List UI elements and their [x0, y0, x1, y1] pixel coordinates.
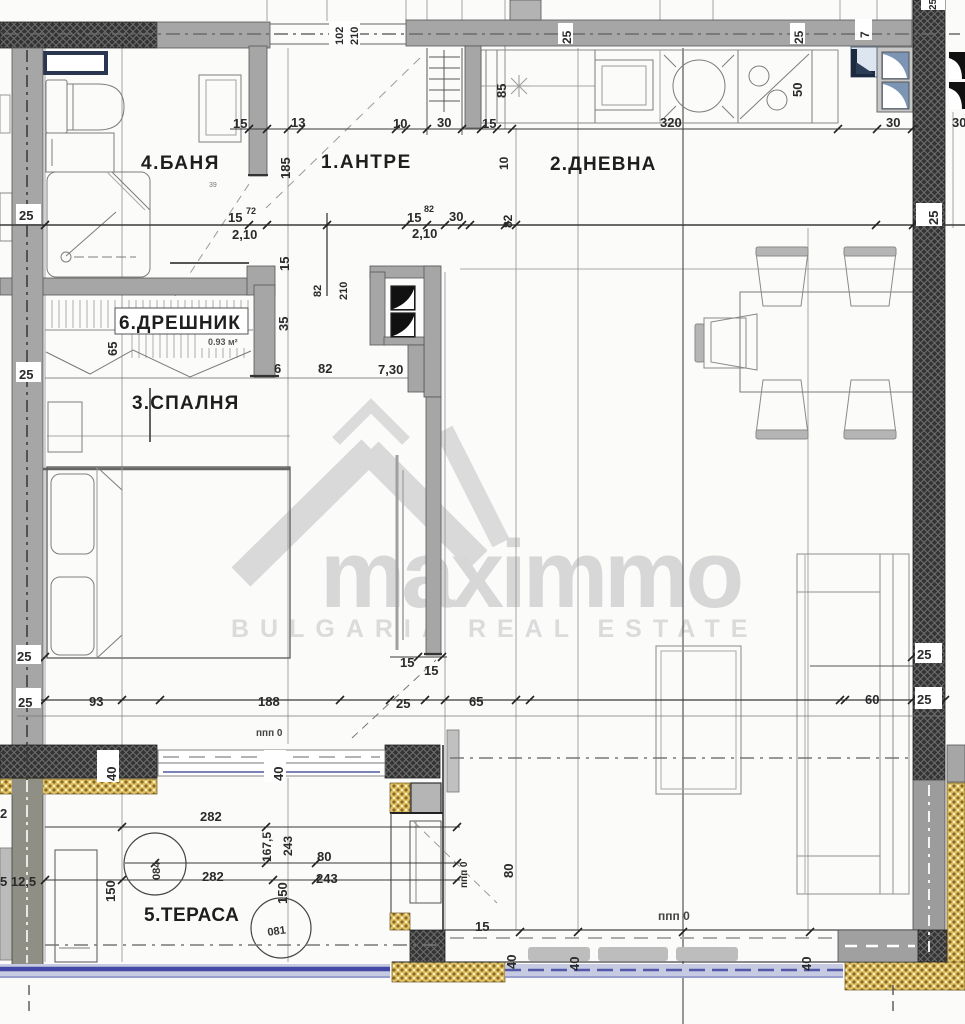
svg-text:15: 15 [400, 655, 414, 670]
svg-text:25: 25 [19, 367, 33, 382]
svg-text:15: 15 [424, 663, 438, 678]
svg-text:82: 82 [312, 285, 324, 297]
svg-text:10: 10 [393, 116, 407, 131]
svg-text:ппп 0: ппп 0 [256, 728, 283, 739]
svg-text:40: 40 [504, 955, 519, 969]
svg-text:72: 72 [246, 206, 256, 216]
svg-text:2: 2 [0, 806, 7, 821]
svg-text:282: 282 [200, 809, 222, 824]
svg-text:2.ДНЕВНА: 2.ДНЕВНА [550, 154, 657, 175]
svg-text:15: 15 [475, 919, 489, 934]
svg-text:maximmo: maximmo [320, 521, 741, 628]
svg-text:30: 30 [437, 115, 451, 130]
svg-text:ппп 0: ппп 0 [658, 909, 690, 923]
svg-text:6.ДРЕШНИК: 6.ДРЕШНИК [119, 313, 241, 334]
svg-text:167,5: 167,5 [260, 832, 274, 862]
svg-text:50: 50 [790, 83, 805, 97]
svg-text:25: 25 [396, 696, 410, 711]
svg-text:102: 102 [334, 27, 346, 45]
svg-text:80: 80 [501, 864, 516, 878]
svg-text:150: 150 [275, 882, 290, 904]
svg-text:65: 65 [469, 694, 483, 709]
svg-text:282: 282 [202, 869, 224, 884]
svg-text:39: 39 [209, 182, 217, 189]
svg-text:0.93 м²: 0.93 м² [208, 337, 238, 347]
svg-text:25: 25 [18, 695, 32, 710]
svg-text:7,30: 7,30 [378, 362, 403, 377]
svg-text:210: 210 [349, 27, 361, 45]
svg-text:5 12,5: 5 12,5 [0, 874, 36, 889]
svg-text:93: 93 [89, 694, 103, 709]
svg-text:10: 10 [497, 156, 511, 170]
svg-text:1.АНТРЕ: 1.АНТРЕ [321, 152, 412, 173]
svg-text:25: 25 [17, 649, 31, 664]
svg-text:30: 30 [952, 115, 965, 130]
svg-text:60: 60 [865, 692, 879, 707]
svg-text:ппп 0: ппп 0 [459, 861, 470, 888]
svg-text:15: 15 [482, 116, 496, 131]
svg-text:13: 13 [291, 115, 305, 130]
svg-text:65: 65 [105, 342, 120, 356]
svg-text:85: 85 [494, 84, 509, 98]
svg-text:2,10: 2,10 [232, 227, 257, 242]
svg-text:BULGARIA REAL ESTATE: BULGARIA REAL ESTATE [231, 615, 758, 643]
svg-text:30: 30 [449, 209, 463, 224]
svg-text:82: 82 [424, 204, 434, 214]
svg-text:82: 82 [318, 361, 332, 376]
svg-text:3.СПАЛНЯ: 3.СПАЛНЯ [132, 393, 240, 414]
svg-text:243: 243 [281, 836, 295, 856]
svg-text:185: 185 [278, 157, 293, 179]
svg-text:25: 25 [792, 30, 806, 44]
svg-text:4.БАНЯ: 4.БАНЯ [141, 153, 220, 174]
svg-text:243: 243 [316, 871, 338, 886]
svg-text:40: 40 [567, 957, 582, 971]
svg-text:210: 210 [338, 282, 350, 300]
svg-text:25: 25 [19, 208, 33, 223]
svg-text:82: 82 [501, 214, 515, 228]
svg-text:2,10: 2,10 [412, 226, 437, 241]
svg-text:15: 15 [277, 257, 292, 271]
svg-text:25: 25 [917, 692, 931, 707]
svg-text:7: 7 [858, 31, 872, 38]
svg-text:15: 15 [228, 210, 242, 225]
svg-text:5.ТЕРАСА: 5.ТЕРАСА [144, 905, 239, 926]
svg-text:25: 25 [928, 0, 939, 10]
svg-text:40: 40 [799, 957, 814, 971]
svg-text:80: 80 [317, 849, 331, 864]
svg-text:30: 30 [886, 115, 900, 130]
svg-text:40: 40 [104, 767, 119, 781]
svg-text:40: 40 [271, 767, 286, 781]
svg-text:15: 15 [407, 210, 421, 225]
svg-text:25: 25 [560, 30, 574, 44]
svg-text:25: 25 [926, 211, 941, 225]
svg-text:25: 25 [917, 647, 931, 662]
svg-text:188: 188 [258, 694, 280, 709]
svg-text:6: 6 [274, 361, 281, 376]
svg-text:084: 084 [151, 861, 163, 880]
svg-text:320: 320 [660, 115, 682, 130]
svg-text:35: 35 [276, 317, 291, 331]
svg-text:15: 15 [233, 116, 247, 131]
svg-text:081: 081 [267, 924, 287, 938]
svg-text:150: 150 [103, 880, 118, 902]
